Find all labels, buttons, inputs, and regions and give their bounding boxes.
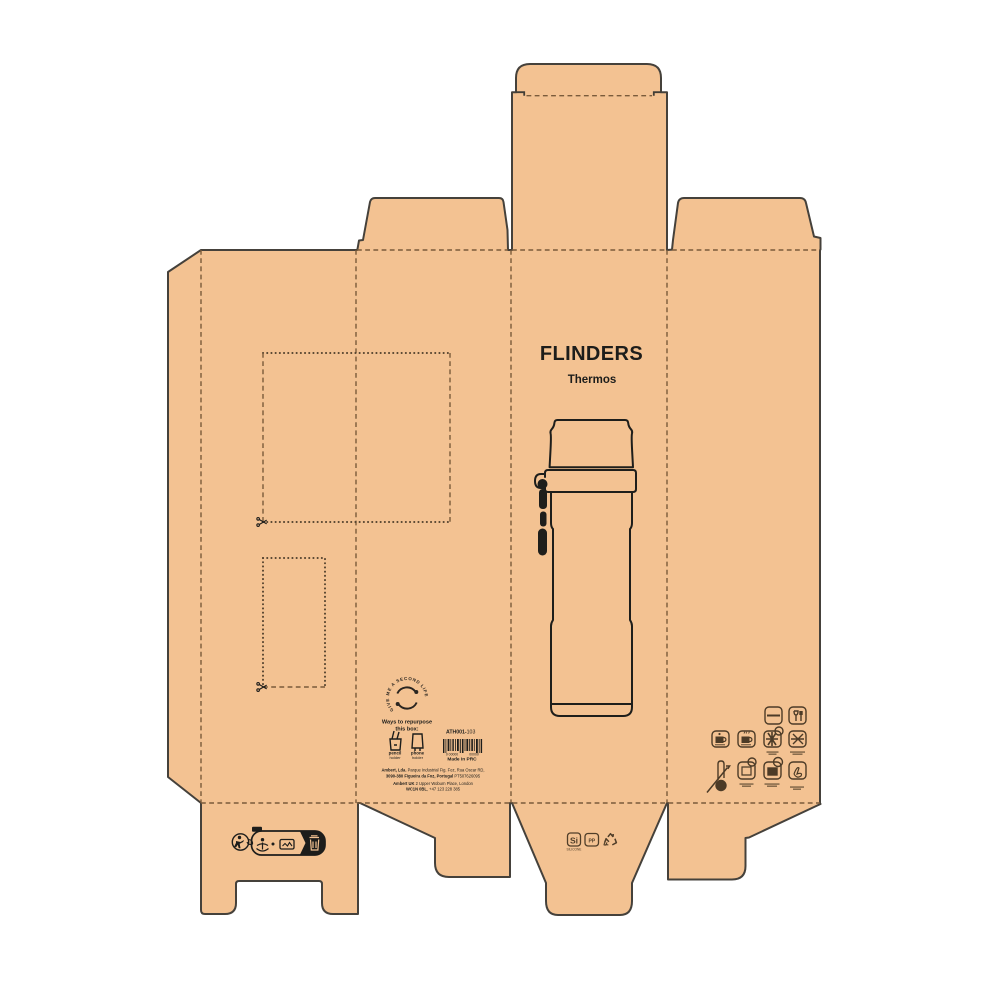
- svg-text:Ambert UK 2 Upper Woburn Place: Ambert UK 2 Upper Woburn Place, London: [393, 781, 474, 786]
- svg-text:SILICONE: SILICONE: [567, 848, 582, 852]
- svg-text:Thermos: Thermos: [568, 374, 617, 386]
- svg-text:holder: holder: [412, 755, 424, 760]
- svg-text:Ways to repurpose: Ways to repurpose: [382, 720, 432, 726]
- svg-text:00000: 00000: [469, 753, 479, 757]
- svg-text:FLINDERS: FLINDERS: [540, 343, 643, 365]
- svg-text:Si: Si: [570, 836, 578, 846]
- svg-text:holder: holder: [389, 755, 401, 760]
- svg-text:this box:: this box:: [395, 727, 418, 733]
- svg-text:PP: PP: [588, 839, 595, 845]
- svg-text:Made in PRC: Made in PRC: [447, 757, 477, 763]
- svg-text:ATH001-103: ATH001-103: [446, 730, 475, 736]
- svg-text:0 00000: 0 00000: [446, 753, 458, 757]
- svg-text:Ambert, Lda. Parque Industrial: Ambert, Lda. Parque Industrial Fig. Foz,…: [381, 768, 484, 773]
- svg-text:3090-380 Figueira da Foz, Port: 3090-380 Figueira da Foz, Portugal PT507…: [386, 774, 481, 779]
- svg-text:WC1N 0BL, +47 123 228 385: WC1N 0BL, +47 123 228 385: [406, 787, 461, 792]
